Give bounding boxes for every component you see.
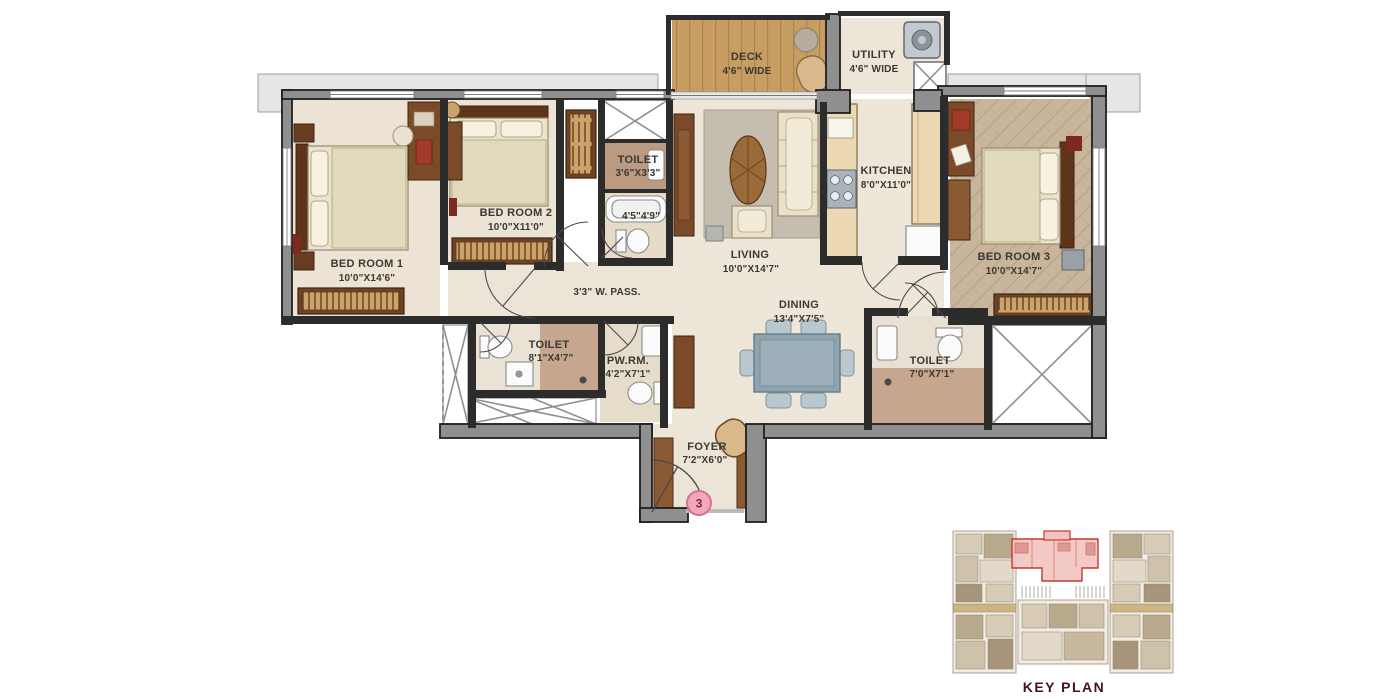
- dining-label: DINING: [779, 299, 819, 311]
- living-dims: 10'0"X14'7": [723, 264, 780, 275]
- toilet-master-dims: 3'6"X3'3": [616, 168, 661, 179]
- bedroom3-label: BED ROOM 3: [978, 251, 1051, 263]
- toilet-common-label: TOILET: [529, 339, 570, 351]
- deck-label: DECK: [731, 51, 763, 63]
- bath-master-dims: 4'5"4'9": [622, 211, 660, 222]
- foyer-label: FOYER: [687, 441, 726, 453]
- toilet-common-dims: 8'1"X4'7": [529, 353, 574, 364]
- foyer-dims: 7'2"X6'0": [683, 455, 728, 466]
- passage-label: 3'3" W. PASS.: [573, 287, 640, 298]
- kitchen-label: KITCHEN: [861, 165, 912, 177]
- key-plan-thumbnail: KEY PLAN: [953, 531, 1173, 695]
- floorplan-page: BED ROOM 1 10'0"X14'6" BED ROOM 2 10'0"X…: [0, 0, 1400, 700]
- key-plan-title: KEY PLAN: [1023, 679, 1106, 695]
- powder-room-label: PW.RM.: [607, 355, 649, 367]
- utility-label: UTILITY: [852, 49, 896, 61]
- floorplan-canvas: BED ROOM 1 10'0"X14'6" BED ROOM 2 10'0"X…: [0, 0, 1400, 700]
- toilet-bed3-dims: 7'0"X7'1": [910, 369, 955, 380]
- bedroom2-furniture: [442, 102, 596, 264]
- bedroom2-dims: 10'0"X11'0": [488, 222, 544, 233]
- powder-room-dims: 4'2"X7'1": [606, 369, 651, 380]
- unit-number-badge: 3: [687, 491, 711, 515]
- bedroom1-dims: 10'0"X14'6": [339, 273, 396, 284]
- toilet-master-label: TOILET: [618, 154, 659, 166]
- dining-dims: 13'4"X7'5": [774, 314, 825, 325]
- bedroom1-label: BED ROOM 1: [331, 258, 404, 270]
- deck-dims: 4'6" WIDE: [723, 66, 772, 77]
- utility-dims: 4'6" WIDE: [850, 64, 899, 75]
- toilet-bed3-label: TOILET: [910, 355, 951, 367]
- kitchen-dims: 8'0"X11'0": [861, 180, 911, 191]
- living-label: LIVING: [731, 249, 769, 261]
- utility-furniture: [904, 22, 940, 58]
- unit-number: 3: [696, 497, 703, 511]
- bedroom3-dims: 10'0"X14'7": [986, 266, 1043, 277]
- bedroom2-label: BED ROOM 2: [480, 207, 553, 219]
